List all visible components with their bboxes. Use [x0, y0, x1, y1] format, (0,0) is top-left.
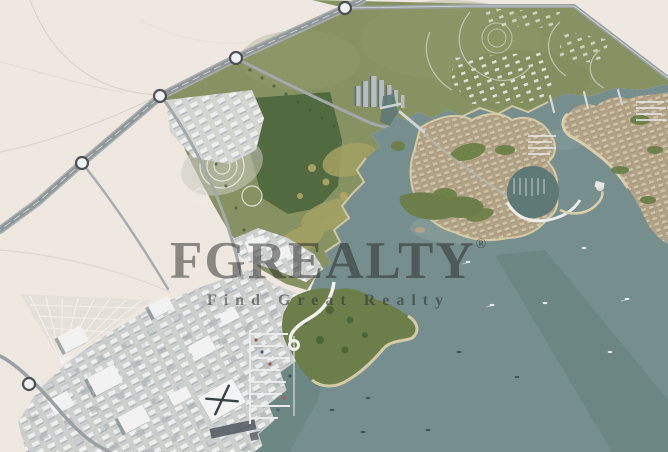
small-islet — [391, 141, 405, 151]
masterplan-aerial-render: FGREALTY® Find Great Realty — [0, 0, 668, 452]
masterplan-svg — [0, 0, 668, 452]
central-park — [250, 92, 342, 214]
tiny-islet — [415, 227, 425, 233]
